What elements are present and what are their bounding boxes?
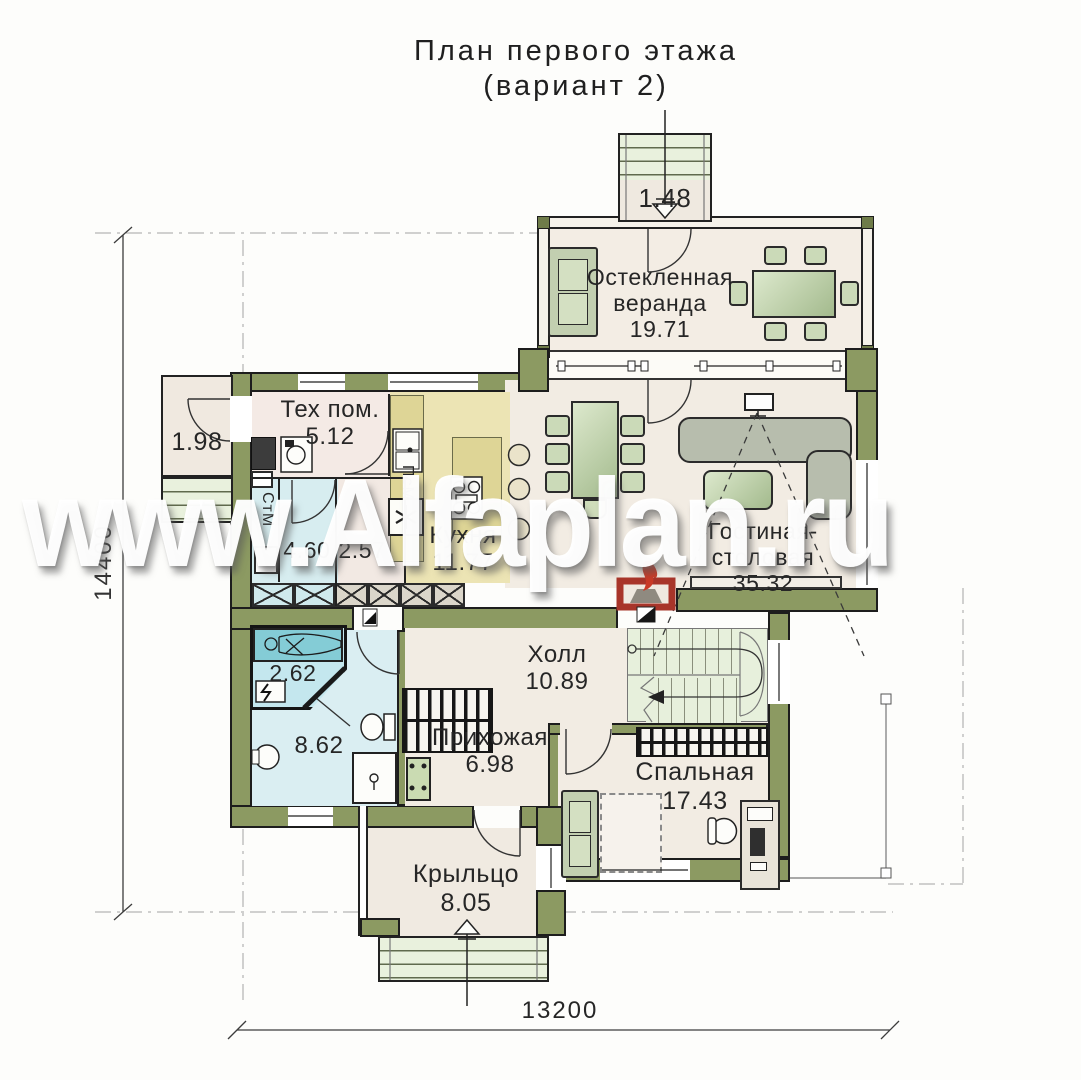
bedroom-label: Спальная 17.43 [612,758,778,815]
title-line1: План первого этажа [320,34,832,69]
watermark: www.Alfaplan.ru [22,452,891,595]
page-title: План первого этажа (вариант 2) [320,34,832,104]
porch-label: Крыльцо 8.05 [384,860,548,917]
floor-plan: План первого этажа (вариант 2) Остекленн… [0,0,1081,1080]
sauna-label: 2.62 [262,660,324,686]
dimension-width: 13200 [500,997,620,1024]
veranda-label: Остекленная веранда 19.71 [575,264,745,343]
title-line2: (вариант 2) [320,69,832,104]
veranda-steps-label: 1.48 [622,184,708,214]
entry-label: Прихожая 6.98 [410,724,570,779]
bathroom-label: 8.62 [286,732,352,759]
hall-label: Холл 10.89 [497,641,617,696]
tech-label: Тех пом. 5.12 [262,396,398,451]
